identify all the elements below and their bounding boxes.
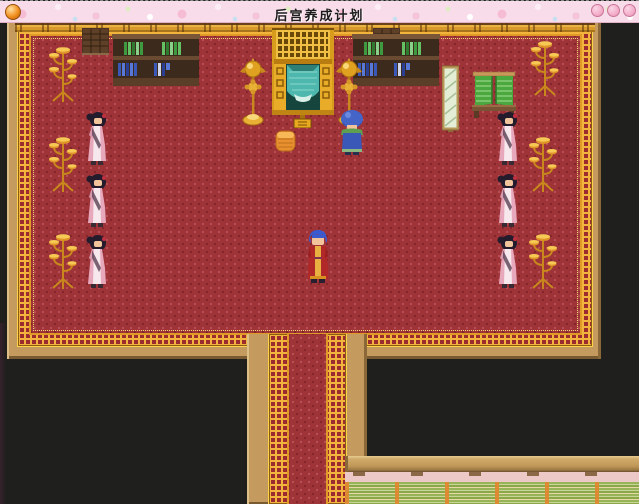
- lower-room: [345, 456, 639, 504]
- berry-icon: [607, 4, 620, 17]
- berry-icon: [623, 4, 636, 17]
- titlebar[interactable]: 后宫养成计划: [0, 1, 639, 23]
- berry-icon: [591, 4, 604, 17]
- main-hall: [7, 23, 601, 359]
- game-viewport[interactable]: [0, 23, 639, 504]
- corridor-carpet: [287, 334, 328, 504]
- corridor-gold-border: [268, 334, 347, 504]
- hall-gold-border: [17, 25, 593, 347]
- lower-room-ledge: [345, 456, 639, 472]
- window-title: 后宫养成计划: [0, 5, 639, 24]
- lower-room-mats: [345, 482, 639, 504]
- hall-carpet: [29, 34, 582, 335]
- lower-room-wall: [345, 472, 639, 482]
- hall-top-trim: [15, 23, 595, 32]
- window-edge-shadow: [0, 323, 6, 504]
- game-window: 后宫养成计划: [0, 0, 639, 504]
- berries-decoration: [591, 4, 636, 17]
